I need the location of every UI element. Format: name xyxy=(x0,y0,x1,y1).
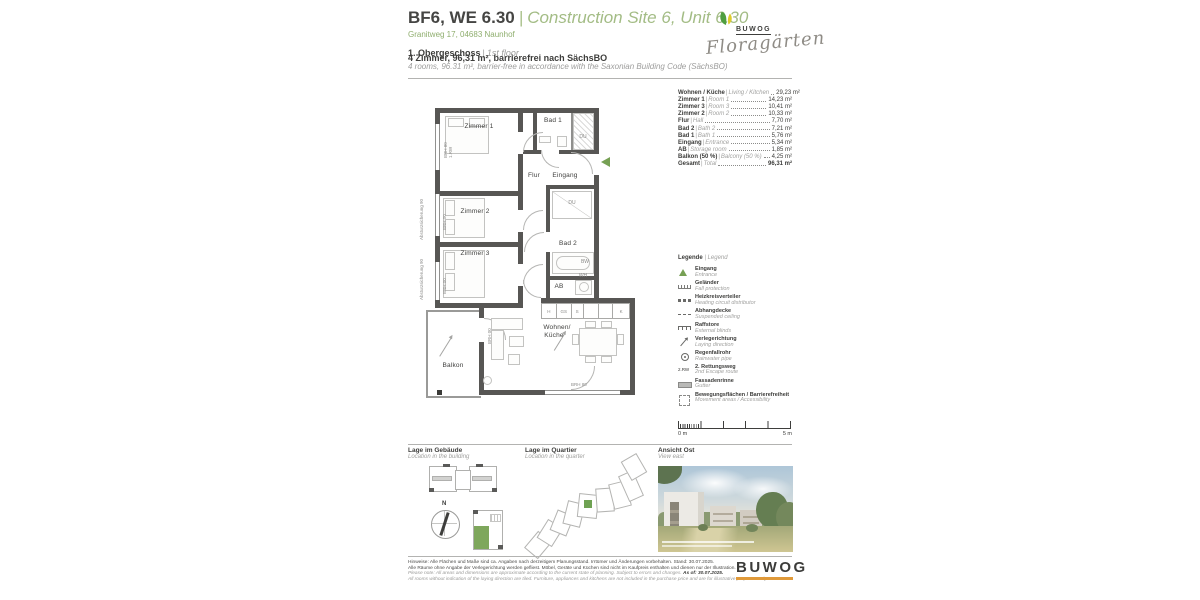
buwog-footer-logo: BUWOG xyxy=(736,559,808,576)
legend-label-en: 2nd Escape route xyxy=(695,370,738,376)
photo-caption-lines xyxy=(662,545,732,547)
row-label-en: Bath 2 xyxy=(698,126,715,132)
disclaimer-en-2: All rooms without indication of the layi… xyxy=(408,577,708,583)
row-label-de: Balkon (50 %) xyxy=(678,154,717,160)
escape-route-icon-label: 2.RW xyxy=(678,367,689,372)
row-label-de: Gesamt xyxy=(678,161,700,167)
building-location-diagram: N xyxy=(423,460,505,554)
balcony-railing xyxy=(426,310,428,398)
wall xyxy=(620,390,635,395)
building-header-de: Lage im Gebäude xyxy=(408,447,469,454)
window xyxy=(435,124,440,170)
wall xyxy=(518,154,523,210)
legend-item: Bewegungsflächen / BarrierefreiheitMovem… xyxy=(678,393,794,404)
view-header-en: View east xyxy=(658,454,694,460)
dotted-leader xyxy=(705,122,769,123)
chair xyxy=(585,321,596,328)
annotation-sill-height: BRH 801.RW xyxy=(443,142,453,158)
row-value: 96,31 m² xyxy=(768,161,792,167)
dotted-leader xyxy=(771,94,774,95)
section-divider xyxy=(408,444,792,445)
annotation-sill-height: BRH 80 xyxy=(571,382,587,387)
kitchen-unit-fridge: K xyxy=(613,304,629,318)
wall xyxy=(479,308,484,318)
wall xyxy=(518,232,523,264)
row-value: 7,21 m² xyxy=(772,126,792,132)
dotted-leader xyxy=(717,136,769,137)
room-label-du2: DU xyxy=(568,200,575,206)
row-value: 10,33 m² xyxy=(768,111,792,117)
table-row: Zimmer 3|Room 310,41 m² xyxy=(678,103,792,110)
scale-zero-label: 0 m xyxy=(678,431,687,437)
row-label-en: Total xyxy=(704,161,717,167)
balcony-railing xyxy=(426,310,479,312)
wall xyxy=(546,252,550,298)
room-label-wohnen: Wohnen/ xyxy=(543,324,570,331)
wall xyxy=(435,236,440,262)
annotation-sill-height: BRH 00 xyxy=(442,278,447,294)
wall xyxy=(546,189,550,232)
chair xyxy=(601,321,612,328)
pillow xyxy=(445,252,455,270)
rainwater-pipe-icon xyxy=(678,351,695,362)
quarter-header-de: Lage im Quartier xyxy=(525,447,585,454)
header-divider xyxy=(408,78,792,79)
row-label-de: Bad 1 xyxy=(678,133,694,139)
legend-item: VerlegerichtungLaying direction xyxy=(678,337,794,348)
wall xyxy=(518,286,523,308)
pillow xyxy=(448,118,464,127)
shower-area xyxy=(573,113,594,150)
external-blinds-icon xyxy=(678,323,695,334)
legend-item: RegenfallrohrRainwater pipe xyxy=(678,351,794,362)
kitchen-unit-sink: S xyxy=(572,304,584,318)
photo-caption-lines xyxy=(662,541,754,543)
building-core-outline xyxy=(455,470,471,490)
buwog-leaf-icon xyxy=(718,11,734,33)
title-separator: | xyxy=(515,8,527,27)
highlighted-unit xyxy=(474,526,489,549)
chair xyxy=(585,356,596,363)
row-label-en: Storage room xyxy=(690,147,726,153)
disclaimer-de-1: Hinweise: Alle Flächen und Maße sind ca.… xyxy=(408,560,708,566)
annotation-sill-height: BRH 00 xyxy=(487,328,492,344)
wall xyxy=(435,108,440,124)
scale-baseline xyxy=(678,428,791,429)
highlighted-quarter-unit xyxy=(584,500,592,508)
legend-label-en: External blinds xyxy=(695,329,731,335)
row-label-de: AB xyxy=(678,147,687,153)
wall xyxy=(546,185,599,189)
kitchen-unit-dishwasher: GS xyxy=(557,304,572,318)
view-section-header: Ansicht Ost View east xyxy=(658,447,694,460)
door-swing xyxy=(571,152,593,174)
row-value: 7,70 m² xyxy=(772,118,792,124)
row-label-en: Living / Kitchen xyxy=(728,90,769,96)
buwog-logo-underline xyxy=(736,577,793,580)
sofa xyxy=(491,330,504,360)
row-label-de: Zimmer 2 xyxy=(678,111,705,117)
room-label-balkon: Balkon xyxy=(442,362,463,369)
suspended-ceiling-icon xyxy=(678,309,695,320)
chair xyxy=(617,334,624,345)
wall xyxy=(440,242,518,247)
legend-label-en: Entrance xyxy=(695,273,717,279)
floor-plan: H GS S K Zimmer 1 Bad 1 DU Eingang Flur … xyxy=(413,92,651,412)
row-value: 5,76 m² xyxy=(772,133,792,139)
entrance-triangle-icon xyxy=(601,157,610,167)
laying-direction-arrow-icon xyxy=(439,337,452,356)
building-section-header: Lage im Gebäude Location in the building xyxy=(408,447,469,460)
compass-north-label: N xyxy=(442,501,446,507)
stair-core-mark xyxy=(443,464,450,467)
wall xyxy=(479,390,545,395)
armchair xyxy=(508,354,520,365)
stairs-mark xyxy=(490,514,501,522)
laying-direction-icon xyxy=(678,337,695,348)
disclaimer-en-1-text: Please note: All areas and dimensions ar… xyxy=(408,571,682,576)
room-label-eingang: Eingang xyxy=(552,172,577,179)
summary-en: 4 rooms, 96.31 m², barrier-free in accor… xyxy=(408,62,728,71)
legend-item: HeizkreisverteilerHeating circuit distri… xyxy=(678,295,794,306)
heating-distributor-icon xyxy=(678,295,695,306)
stair-core-mark xyxy=(492,488,497,492)
legend-item: EingangEntrance xyxy=(678,267,794,278)
movement-area-icon xyxy=(678,393,695,404)
legend-title: Legende | Legend xyxy=(678,255,794,261)
room-label-kueche: Küche xyxy=(544,332,563,339)
escape-route-icon: 2.RW xyxy=(678,365,695,376)
row-value: 1,85 m² xyxy=(772,147,792,153)
legend-title-sep: | xyxy=(704,255,706,261)
stair-core-mark xyxy=(476,464,483,467)
address: Granitweg 17, 04683 Naunhof xyxy=(408,30,515,39)
toilet xyxy=(557,136,567,147)
table-row: Zimmer 1|Room 114,23 m² xyxy=(678,96,792,103)
photo-bush xyxy=(746,524,758,532)
footer-divider xyxy=(408,556,792,557)
floorplan-sheet: BF6, WE 6.30|Construction Site 6, Unit 6… xyxy=(0,0,1200,600)
legend-label-en: Suspended ceiling xyxy=(695,315,740,321)
coffee-table xyxy=(509,336,524,347)
annotation-sill-height: BRH 00 xyxy=(442,214,447,230)
sofa xyxy=(491,318,523,330)
photo-path xyxy=(676,528,746,552)
entrance-triangle-icon xyxy=(678,267,695,278)
dotted-leader xyxy=(731,143,769,144)
stair-core-mark xyxy=(429,488,434,492)
sink xyxy=(539,136,551,143)
plant xyxy=(483,376,492,385)
washer-drum xyxy=(579,282,589,292)
footer-disclaimer: Hinweise: Alle Flächen und Maße sind ca.… xyxy=(408,560,708,582)
chair xyxy=(572,334,579,345)
row-label-de: Flur xyxy=(678,118,689,124)
wall xyxy=(630,298,635,395)
row-value: 29,23 m² xyxy=(776,90,800,96)
annotation-fall-protection: Absturzsicherung 90 xyxy=(419,259,424,300)
dotted-leader xyxy=(764,157,770,158)
annotation-1rw: 1.RW xyxy=(448,142,453,158)
view-east-photo xyxy=(658,466,793,552)
unit-code-en: Construction Site 6, Unit 6.30 xyxy=(527,8,748,27)
room-label-bad1: Bad 1 xyxy=(544,117,562,124)
balcony-railing xyxy=(426,396,481,398)
row-label-en: Room 2 xyxy=(708,111,729,117)
window xyxy=(435,194,440,236)
row-label-de: Zimmer 1 xyxy=(678,97,705,103)
railing-icon xyxy=(678,281,695,292)
disclaimer-as-of: As of: 30.07.2025. xyxy=(683,571,723,576)
wall xyxy=(594,108,599,152)
room-label-du1: DU xyxy=(579,134,586,140)
table-row: Zimmer 2|Room 210,33 m² xyxy=(678,110,792,117)
legend: Legende | Legend EingangEntrance Gelände… xyxy=(678,255,794,407)
legend-item: RaffstoreExternal blinds xyxy=(678,323,794,334)
unit-code: BF6, WE 6.30 xyxy=(408,8,515,27)
legend-label-en: Fall protection xyxy=(695,287,730,293)
legend-label-en: Movement areas / Accessibility xyxy=(695,398,789,404)
annotation-fall-protection: Absturzsicherung 90 xyxy=(419,199,424,240)
quarter-location-diagram xyxy=(523,460,641,556)
door-swing xyxy=(541,150,559,168)
row-label-de: Wohnen / Küche xyxy=(678,90,725,96)
wall xyxy=(518,108,523,132)
table-row-total: Gesamt|Total96,31 m² xyxy=(678,160,792,167)
room-label-ab: AB xyxy=(554,283,563,290)
kitchen-unit xyxy=(584,304,599,318)
view-header-de: Ansicht Ost xyxy=(658,447,694,454)
table-row: Bad 1|Bath 15,76 m² xyxy=(678,132,792,139)
legend-label-en: Gutter xyxy=(695,384,734,390)
disclaimer-en-1: Please note: All areas and dimensions ar… xyxy=(408,571,708,577)
dotted-leader xyxy=(717,129,769,130)
row-label-en: Hall xyxy=(693,118,703,124)
legend-item: AbhangdeckeSuspended ceiling xyxy=(678,309,794,320)
legend-item: GeländerFall protection xyxy=(678,281,794,292)
kitchen-unit-label: GS xyxy=(560,309,567,314)
row-label-en: Room 1 xyxy=(708,97,729,103)
table-row: Balkon (50 %)|Balcony (50 %)4,25 m² xyxy=(678,153,792,160)
photo-bush xyxy=(698,524,708,531)
dotted-leader xyxy=(731,108,766,109)
table-row: AB|Storage room1,85 m² xyxy=(678,146,792,153)
dining-table xyxy=(579,328,617,356)
legend-label-en: Rainwater pipe xyxy=(695,357,732,363)
kitchen-unit-label: H xyxy=(547,309,550,314)
dotted-leader xyxy=(718,165,766,166)
room-label-bw: BW xyxy=(581,259,589,265)
kitchen-unit-label: S xyxy=(576,309,579,314)
kitchen-unit-label: K xyxy=(620,309,623,314)
stair-core-mark xyxy=(498,545,503,549)
quarter-section-header: Lage im Quartier Location in the quarter xyxy=(525,447,585,460)
table-row: Flur|Hall7,70 m² xyxy=(678,117,792,124)
row-label-en: Room 3 xyxy=(708,104,729,110)
table-row: Wohnen / Küche|Living / Kitchen29,23 m² xyxy=(678,89,792,96)
gutter-icon xyxy=(678,379,695,390)
row-value: 10,41 m² xyxy=(768,104,792,110)
legend-title-en: Legend xyxy=(708,255,728,261)
balcony-band xyxy=(432,476,452,481)
balcony-post xyxy=(437,390,442,395)
row-label-en: Entrance xyxy=(705,140,729,146)
dotted-leader xyxy=(729,150,770,151)
balcony-band xyxy=(472,476,492,481)
door-swing xyxy=(524,232,544,252)
room-label-flur: Flur xyxy=(528,172,540,179)
room-label-zimmer1: Zimmer 1 xyxy=(464,123,493,130)
kitchen-counter: H GS S K xyxy=(541,303,630,319)
legend-title-de: Legende xyxy=(678,255,703,261)
row-value: 14,23 m² xyxy=(768,97,792,103)
window xyxy=(545,390,620,395)
wall xyxy=(440,191,518,196)
area-table: Wohnen / Küche|Living / Kitchen29,23 m² … xyxy=(678,89,792,167)
table-row: Eingang|Entrance5,34 m² xyxy=(678,139,792,146)
legend-item: 2.RW 2. Rettungsweg2nd Escape route xyxy=(678,365,794,376)
row-label-de: Bad 2 xyxy=(678,126,694,132)
scale-bar: 0 m 5 m xyxy=(678,418,792,438)
row-label-en: Bath 1 xyxy=(698,133,715,139)
legend-label-en: Laying direction xyxy=(695,343,737,349)
table-row: Bad 2|Bath 27,21 m² xyxy=(678,124,792,131)
legend-label-en: Heating circuit distributor xyxy=(695,301,756,307)
room-label-zimmer2: Zimmer 2 xyxy=(460,208,489,215)
dotted-leader xyxy=(731,115,766,116)
row-label-de: Zimmer 3 xyxy=(678,104,705,110)
legend-item: FassadenrinneGutter xyxy=(678,379,794,390)
door-swing xyxy=(523,280,541,298)
kitchen-unit xyxy=(599,304,614,318)
window xyxy=(435,262,440,300)
stair-core-mark xyxy=(473,510,478,514)
row-label-en: Balcony (50 %) xyxy=(721,154,762,160)
room-label-wh: WH xyxy=(579,273,587,279)
door-swing xyxy=(523,210,543,230)
page-title: BF6, WE 6.30|Construction Site 6, Unit 6… xyxy=(408,8,748,28)
chair xyxy=(601,356,612,363)
room-label-zimmer3: Zimmer 3 xyxy=(460,250,489,257)
room-label-bad2: Bad 2 xyxy=(559,240,577,247)
kitchen-unit-hob: H xyxy=(542,304,557,318)
row-label-de: Eingang xyxy=(678,140,702,146)
row-value: 5,34 m² xyxy=(772,140,792,146)
scale-five-label: 5 m xyxy=(783,431,792,437)
row-value: 4,25 m² xyxy=(772,154,792,160)
dotted-leader xyxy=(731,101,766,102)
